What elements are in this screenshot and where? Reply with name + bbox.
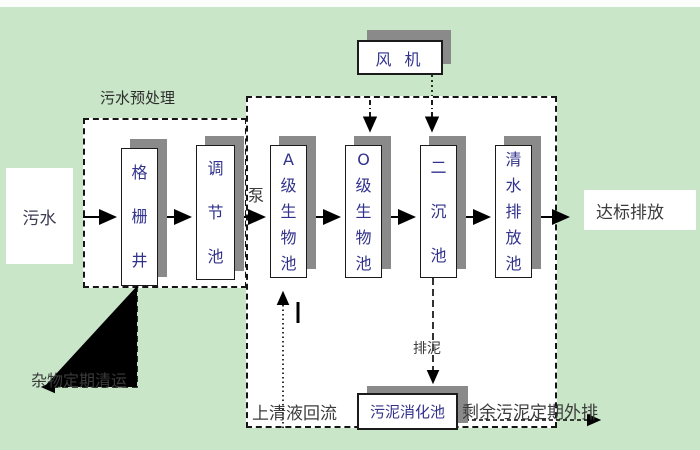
- clean-water-discharge-tank-label: 清 水 排 放 池: [496, 147, 531, 277]
- standard-discharge-node: 达标排放: [584, 190, 696, 230]
- pretreatment-label: 污水预处理: [100, 87, 175, 108]
- a-grade-bio-tank: A 级 生 物 池: [270, 145, 307, 278]
- sludge-digestion-tank-label: 污泥消化池: [370, 401, 445, 422]
- sludge-digestion-tank: 污泥消化池: [357, 393, 458, 430]
- o-grade-bio-tank: O 级 生 物 池: [345, 145, 382, 278]
- pump-label: 泵: [248, 182, 264, 206]
- grid-well-label: 格 栅 井: [122, 151, 157, 283]
- blower-label: 风 机: [375, 46, 424, 70]
- blower-node: 风 机: [357, 40, 443, 75]
- standard-discharge-label: 达标排放: [596, 198, 664, 223]
- wastewater-treatment-flow-diagram: 污水 达标排放: [0, 0, 700, 450]
- a-grade-bio-tank-label: A 级 生 物 池: [271, 147, 306, 277]
- sewage-node: 污水: [6, 168, 73, 264]
- debris-removal-label: 杂物定期清运: [31, 367, 127, 391]
- top-margin-strip: [0, 0, 700, 7]
- clean-water-discharge-tank: 清 水 排 放 池: [495, 145, 532, 278]
- excess-sludge-label: 剩余污泥定期外排: [462, 398, 598, 423]
- sludge-discharge-label: 排泥: [413, 338, 441, 358]
- supernatant-return-label: 上清液回流: [252, 399, 337, 424]
- sewage-label: 污水: [23, 204, 57, 229]
- secondary-sedimentation-tank: 二 沉 池: [420, 145, 457, 278]
- o-grade-bio-tank-label: O 级 生 物 池: [346, 147, 381, 277]
- regulating-tank-label: 调 节 池: [197, 147, 234, 279]
- secondary-sedimentation-tank-label: 二 沉 池: [421, 146, 456, 278]
- regulating-tank: 调 节 池: [196, 145, 235, 280]
- grid-well-tank: 格 栅 井: [121, 148, 158, 286]
